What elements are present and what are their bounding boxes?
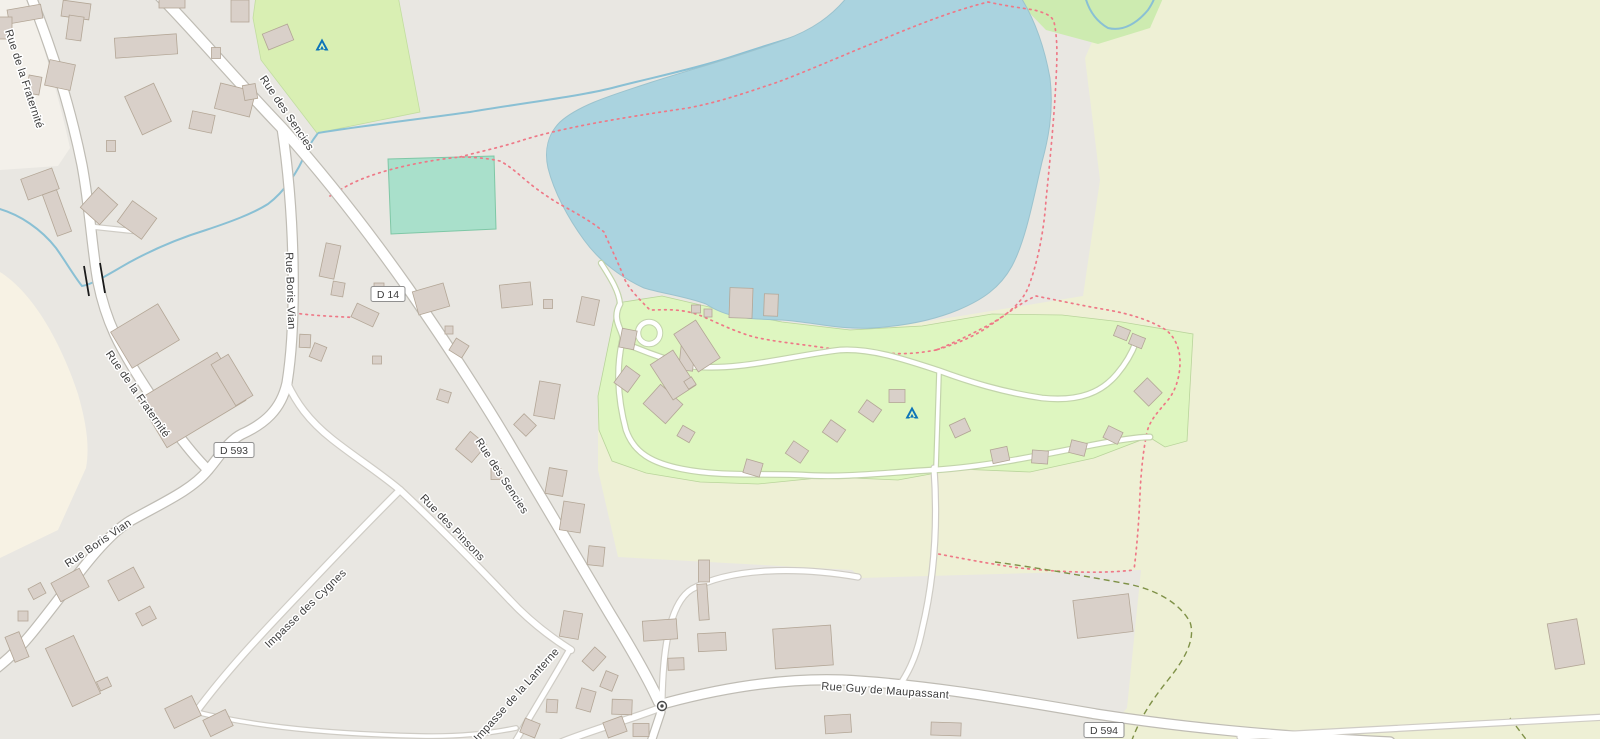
- building: [299, 334, 311, 348]
- building: [633, 724, 649, 737]
- building: [889, 390, 905, 403]
- building: [107, 141, 116, 152]
- building: [1073, 594, 1133, 639]
- building: [990, 446, 1010, 463]
- building: [231, 0, 249, 22]
- building: [559, 611, 582, 640]
- building: [824, 714, 851, 734]
- building: [445, 326, 453, 334]
- building: [619, 328, 637, 350]
- building: [544, 300, 553, 309]
- building: [331, 281, 345, 297]
- route-shield-text: D 594: [1090, 725, 1118, 737]
- building: [45, 60, 76, 91]
- mini-roundabout-icon: [658, 702, 667, 711]
- route-shield-d593: D 593: [214, 443, 254, 458]
- building: [692, 305, 701, 313]
- route-shield-text: D 593: [220, 445, 248, 457]
- building: [668, 658, 684, 671]
- building: [612, 699, 633, 715]
- building: [18, 611, 28, 621]
- building: [373, 356, 382, 364]
- building: [499, 282, 532, 308]
- building: [729, 288, 753, 319]
- route-shield-d594: D 594: [1084, 723, 1124, 738]
- building: [642, 619, 677, 641]
- building: [242, 83, 257, 100]
- building: [546, 699, 558, 713]
- building: [1032, 450, 1049, 464]
- route-shield-text: D 14: [377, 289, 399, 301]
- building: [159, 0, 185, 8]
- building: [704, 309, 712, 317]
- building: [699, 560, 710, 582]
- map-canvas[interactable]: Rue de la FraternitéRue de la Fraternité…: [0, 0, 1600, 739]
- building: [587, 546, 605, 567]
- building: [931, 722, 961, 736]
- building: [697, 584, 709, 621]
- building: [66, 15, 84, 41]
- building: [773, 625, 834, 669]
- route-shield-d14: D 14: [371, 287, 405, 302]
- building: [212, 48, 221, 59]
- building: [559, 501, 584, 533]
- building: [764, 294, 779, 316]
- building: [114, 34, 177, 58]
- building: [698, 632, 727, 651]
